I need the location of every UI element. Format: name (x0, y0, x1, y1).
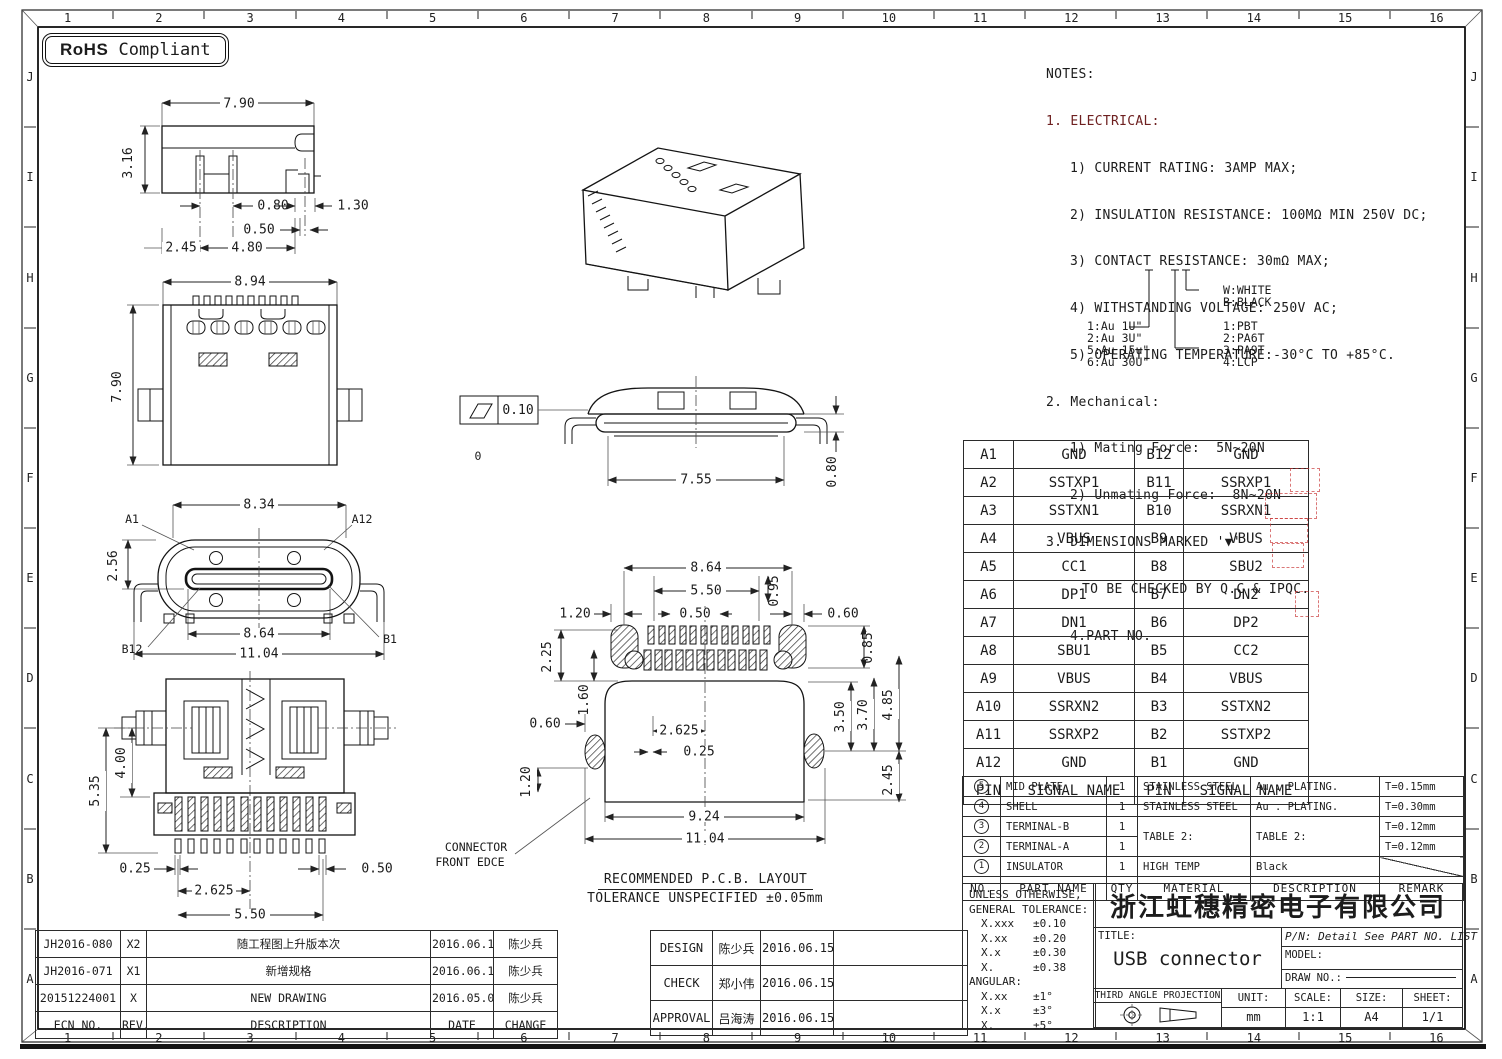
signal-a: GND (1014, 441, 1135, 469)
tol-key: X.xx (969, 932, 1033, 947)
pin-a: A11 (964, 721, 1014, 749)
approval-table: DESIGN陈少兵2016.06.15 CHECK郑小伟2016.06.15 A… (650, 930, 968, 1036)
grid-col: 11 (935, 11, 1026, 25)
tol-val: ±3° (1033, 1004, 1081, 1019)
draw-no-cell: DRAW NO.: (1281, 969, 1463, 989)
signal-a: GND (1014, 749, 1135, 777)
bottom-view-drawing: 0.25 0.50 2.625 5.50 5.35 4.00 (58, 663, 408, 931)
pin-callout-b1: B1 (383, 632, 397, 646)
dim-label: 1.20 (559, 607, 590, 622)
grid-row: I (22, 127, 38, 227)
unit-label: UNIT: (1221, 988, 1286, 1008)
approval-empty (834, 966, 968, 1001)
bom-remark: T=0.12mm (1380, 817, 1464, 837)
item-number: 3 (974, 819, 989, 834)
grid-col: 6 (478, 11, 569, 25)
grid-row: F (1466, 428, 1482, 528)
grid-col: 10 (843, 11, 934, 25)
bom-no: 3 (963, 817, 1001, 837)
notes-electrical-header: 1. ELECTRICAL: (1046, 114, 1466, 130)
bom-remark: T=0.30mm (1380, 797, 1464, 817)
sheet-label: SHEET: (1402, 988, 1463, 1008)
dim-label: 1.60 (577, 684, 592, 715)
pin-b: B12 (1135, 441, 1184, 469)
dim-label: 9.24 (688, 810, 719, 825)
front-edge-label: CONNECTOR (445, 840, 507, 854)
bom-part: SHELL (1001, 797, 1107, 817)
review-mark (1270, 518, 1308, 543)
bom-qty: 1 (1107, 817, 1138, 837)
bom-no: 5 (963, 777, 1001, 797)
dim-label: 11.04 (239, 647, 278, 662)
tolerance-item: X.±5° (969, 1019, 1081, 1034)
draw-no-label: DRAW NO.: (1285, 972, 1342, 984)
rev: X1 (121, 958, 147, 985)
pin-a: A9 (964, 665, 1014, 693)
dim-label: 0.50 (243, 223, 274, 238)
ecn-no: 20151224001 (36, 985, 121, 1012)
grid-row: J (1466, 27, 1482, 127)
bom-no: 4 (963, 797, 1001, 817)
grid-col: 4 (296, 11, 387, 25)
grid-col: 14 (1208, 1031, 1299, 1045)
revision-row: JH2016-071X1新增规格2016.06.10陈少兵 (36, 958, 558, 985)
tol-key: X.xx (969, 990, 1033, 1005)
rev: X (121, 985, 147, 1012)
projection-cell: THIRD ANGLE PROJECTION (1093, 988, 1222, 1028)
dim-label: 2.45 (165, 241, 196, 256)
revision-header-row: ECN NO.REV.DESCRIPTIONDATECHANGE (36, 1012, 558, 1039)
dim-label: 11.04 (685, 832, 724, 847)
third-angle-projection-symbol (1094, 1003, 1221, 1027)
side-view-drawing: 7.90 3.16 0.80 1.30 0.50 2.45 4.80 (112, 78, 377, 268)
approval-name: 陈少兵 (713, 931, 761, 966)
pin-a: A4 (964, 525, 1014, 553)
approval-row: APPROVAL吕海涛2016.06.15 (651, 1001, 968, 1036)
bom-remark (1380, 857, 1464, 877)
signal-b: VBUS (1184, 665, 1309, 693)
dim-label: 1.30 (337, 199, 368, 214)
approval-date: 2016.06.15 (761, 966, 834, 1001)
dim-label: 4.00 (114, 747, 129, 778)
grid-row: H (22, 227, 38, 327)
bom-row: 5MID PLATE1STAINLESS STEELAu . PLATING.T… (963, 777, 1464, 797)
pin-b: B5 (1135, 637, 1184, 665)
pin-b: B6 (1135, 609, 1184, 637)
dim-label: 0.50 (361, 862, 392, 877)
pin-row: A6DP1B7DN2 (964, 581, 1309, 609)
bom-remark: T=0.12mm (1380, 837, 1464, 857)
scale-label: SCALE: (1285, 988, 1341, 1008)
grid-row: D (22, 628, 38, 728)
top-ruler: 12345678910111213141516 (22, 11, 1482, 25)
pin-b: B3 (1135, 693, 1184, 721)
ecn-no: JH2016-071 (36, 958, 121, 985)
pin-row: A11SSRXP2B2SSTXP2 (964, 721, 1309, 749)
change-header: CHANGE (494, 1012, 558, 1039)
pin-b: B9 (1135, 525, 1184, 553)
pin-b: B1 (1135, 749, 1184, 777)
dim-label: 2.25 (540, 641, 555, 672)
signal-b: SSTXP2 (1184, 721, 1309, 749)
tol-val: ±0.30 (1033, 946, 1081, 961)
dim-label: 7.55 (680, 473, 711, 488)
grid-col: 5 (387, 11, 478, 25)
review-mark (1265, 493, 1317, 519)
isometric-view-drawing (558, 128, 823, 298)
rev-date: 2016.06.10 (431, 958, 494, 985)
dim-label: 4.80 (231, 241, 262, 256)
tolerance-item: X.x±3° (969, 1004, 1081, 1019)
dim-label: 4.85 (881, 689, 896, 720)
bom-material: STAINLESS STEEL (1138, 777, 1251, 797)
bom-description: TABLE 2: (1251, 817, 1380, 857)
dim-label: 8.94 (234, 275, 265, 290)
dim-label: 5.50 (690, 584, 721, 599)
note-line: 2) INSULATION RESISTANCE: 100MΩ MIN 250V… (1070, 208, 1466, 224)
tolerance-block: UNLESS OTHERWISE, GENERAL TOLERANCE: X.x… (962, 883, 1096, 1030)
grid-col: 2 (113, 11, 204, 25)
grid-col: 9 (752, 11, 843, 25)
bom-part: INSULATOR (1001, 857, 1107, 877)
rohs-badge: RoHS Compliant (42, 33, 229, 67)
pin-b: B4 (1135, 665, 1184, 693)
grid-col: 16 (1391, 1031, 1482, 1045)
tol-val: ±0.20 (1033, 932, 1081, 947)
grid-row: A (1466, 929, 1482, 1029)
model-cell: MODEL: (1281, 946, 1463, 970)
dim-label: 3.16 (121, 147, 136, 178)
rev-change: 陈少兵 (494, 985, 558, 1012)
dim-label: 2.56 (106, 550, 121, 581)
top-view-drawing: 8.94 7.90 (103, 263, 408, 481)
bom-part: TERMINAL-B (1001, 817, 1107, 837)
dim-label: 3.70 (856, 699, 871, 730)
pin-row: A5CC1B8SBU2 (964, 553, 1309, 581)
tol-key: X.xxx (969, 917, 1033, 932)
signal-a: DP1 (1014, 581, 1135, 609)
dim-label: 8.34 (243, 498, 274, 513)
approval-name: 吕海涛 (713, 1001, 761, 1036)
grid-row: J (22, 27, 38, 127)
pin-a: A5 (964, 553, 1014, 581)
item-number: 2 (974, 839, 989, 854)
bom-description: Au . PLATING. (1251, 777, 1380, 797)
tol-val: ±0.10 (1033, 917, 1081, 932)
grid-row: C (1466, 728, 1482, 828)
approval-date: 2016.06.15 (761, 931, 834, 966)
signal-a: VBUS (1014, 525, 1135, 553)
approval-date: 2016.06.15 (761, 1001, 834, 1036)
signal-b: DP2 (1184, 609, 1309, 637)
bom-qty: 1 (1107, 857, 1138, 877)
pin-row: A1GNDB12GND (964, 441, 1309, 469)
grid-col: 12 (1026, 1031, 1117, 1045)
grid-col: 7 (570, 11, 661, 25)
dim-label: 0.60 (529, 717, 560, 732)
description-header: DESCRIPTION (147, 1012, 431, 1039)
legend-color-2: B:BLACK (1223, 295, 1272, 309)
grid-col: 3 (205, 11, 296, 25)
signal-a: VBUS (1014, 665, 1135, 693)
approval-empty (834, 931, 968, 966)
review-mark (1295, 591, 1319, 617)
signal-a: SSTXP1 (1014, 469, 1135, 497)
profile-view-drawing: 0.10 7.55 0.80 0 (448, 368, 853, 513)
dim-label: 0.60 (827, 607, 858, 622)
grid-row: B (22, 829, 38, 929)
bom-material: HIGH TEMP (1138, 857, 1251, 877)
item-number: 5 (974, 779, 989, 794)
rev-description: 随工程图上升版本次 (147, 931, 431, 958)
grid-row: H (1466, 227, 1482, 327)
flatness-value: 0.10 (502, 403, 533, 418)
signal-a: DN1 (1014, 609, 1135, 637)
bom-part: MID PLATE (1001, 777, 1107, 797)
signal-b: SSTXN2 (1184, 693, 1309, 721)
pin-assignment-table: A1GNDB12GND A2SSTXP1B11SSRXP1 A3SSTXN1B1… (963, 440, 1309, 805)
pin-b: B10 (1135, 497, 1184, 525)
pin-b: B2 (1135, 721, 1184, 749)
tolerance-line: UNLESS OTHERWISE, (969, 888, 1095, 903)
sheet-value: 1/1 (1402, 1007, 1463, 1028)
date-header: DATE (431, 1012, 494, 1039)
tolerance-item: X.±0.38 (969, 961, 1081, 976)
tolerance-item: X.xxx±0.10 (969, 917, 1081, 932)
left-ruler: JIHGFEDCBA (22, 27, 38, 1029)
rev-header: REV. (121, 1012, 147, 1039)
bom-qty: 1 (1107, 837, 1138, 857)
dim-label: 2.625 (659, 724, 698, 739)
part-number-cell: P/N: Detail See PART NO. LIST (1281, 927, 1463, 947)
legend-material-4: 4:LCP (1223, 355, 1258, 369)
dim-label: 0.25 (119, 862, 150, 877)
pin-b: B11 (1135, 469, 1184, 497)
pin-row: A7DN1B6DP2 (964, 609, 1309, 637)
rev: X2 (121, 931, 147, 958)
tolerance-line: GENERAL TOLERANCE: (969, 903, 1095, 918)
dim-label: 0.50 (679, 607, 710, 622)
pin-row: A8SBU1B5CC2 (964, 637, 1309, 665)
size-value: A4 (1340, 1007, 1403, 1028)
signal-b: CC2 (1184, 637, 1309, 665)
grid-row: I (1466, 127, 1482, 227)
grid-col: 12 (1026, 11, 1117, 25)
rev-date: 2016.05.05 (431, 985, 494, 1012)
signal-a: SSTXN1 (1014, 497, 1135, 525)
rohs-text: Compliant (119, 40, 211, 60)
dim-label: 2.625 (194, 884, 233, 899)
revision-row: 20151224001XNEW DRAWING2016.05.05陈少兵 (36, 985, 558, 1012)
signal-a: SSRXP2 (1014, 721, 1135, 749)
pin-a: A12 (964, 749, 1014, 777)
draw-no-line (1346, 977, 1456, 978)
bom-description: Black (1251, 857, 1380, 877)
grid-row: C (22, 728, 38, 828)
pin-row: A4VBUSB9VBUS (964, 525, 1309, 553)
pin-a: A6 (964, 581, 1014, 609)
item-number: 1 (974, 859, 989, 874)
tol-val: ±0.38 (1033, 961, 1081, 976)
approval-empty (834, 1001, 968, 1036)
grid-row: D (1466, 628, 1482, 728)
review-mark (1272, 543, 1304, 568)
item-number: 4 (974, 799, 989, 814)
grid-row: B (1466, 829, 1482, 929)
revision-row: JH2016-080X2随工程图上升版本次2016.06.15陈少兵 (36, 931, 558, 958)
approval-role: DESIGN (651, 931, 713, 966)
dim-label: 0.95 (767, 575, 782, 606)
bom-row: 4SHELL1STAINLESS STEELAu . PLATING.T=0.3… (963, 797, 1464, 817)
company-name: 浙江虹穗精密电子有限公司 (1093, 883, 1463, 928)
grid-col: 13 (1117, 11, 1208, 25)
front-view-drawing: 8.34 A1 A12 2.56 8.64 B12 B1 11.04 (98, 488, 413, 666)
approval-role: APPROVAL (651, 1001, 713, 1036)
grid-row: G (22, 328, 38, 428)
tolerance-item: X.xx±0.20 (969, 932, 1081, 947)
bom-no: 2 (963, 837, 1001, 857)
bom-qty: 1 (1107, 797, 1138, 817)
rev-date: 2016.06.15 (431, 931, 494, 958)
grid-row: G (1466, 328, 1482, 428)
tolerance-item: X.x±0.30 (969, 946, 1081, 961)
projection-label: THIRD ANGLE PROJECTION (1094, 989, 1221, 1003)
pin-a: A1 (964, 441, 1014, 469)
grid-col: 8 (661, 11, 752, 25)
rev-change: 陈少兵 (494, 931, 558, 958)
grid-col: 14 (1208, 11, 1299, 25)
pin-a: A7 (964, 609, 1014, 637)
rohs-bold: RoHS (60, 40, 108, 59)
drawing-title: USB connector (1094, 948, 1281, 970)
tol-val: ±1° (1033, 990, 1081, 1005)
pin-row: A12GNDB1GND (964, 749, 1309, 777)
signal-b: GND (1184, 749, 1309, 777)
dim-label: 0.25 (683, 745, 714, 760)
bom-row: 3TERMINAL-B1TABLE 2:TABLE 2:T=0.12mm (963, 817, 1464, 837)
size-label: SIZE: (1340, 988, 1403, 1008)
pin-a: A2 (964, 469, 1014, 497)
pin-a: A8 (964, 637, 1014, 665)
rev-description: 新增规格 (147, 958, 431, 985)
dim-label: 0.80 (825, 456, 840, 487)
dim-label: 2.45 (881, 764, 896, 795)
signal-b: DN2 (1184, 581, 1309, 609)
bom-material: STAINLESS STEEL (1138, 797, 1251, 817)
grid-row: E (22, 528, 38, 628)
bom-description: Au . PLATING. (1251, 797, 1380, 817)
approval-row: CHECK郑小伟2016.06.15 (651, 966, 968, 1001)
notes-title: NOTES: (1046, 67, 1466, 83)
bom-remark: T=0.15mm (1380, 777, 1464, 797)
grid-row: F (22, 428, 38, 528)
tolerance-item: X.xx±1° (969, 990, 1081, 1005)
approval-row: DESIGN陈少兵2016.06.15 (651, 931, 968, 966)
approval-name: 郑小伟 (713, 966, 761, 1001)
dim-label: 3.50 (833, 701, 848, 732)
pin-a: A3 (964, 497, 1014, 525)
bom-part: TERMINAL-A (1001, 837, 1107, 857)
bom-row: 1INSULATOR1HIGH TEMPBlack (963, 857, 1464, 877)
tol-key: X.x (969, 946, 1033, 961)
pin-b: B8 (1135, 553, 1184, 581)
dim-label: 7.90 (223, 97, 254, 112)
dim-label: 1.20 (519, 766, 534, 797)
pin-a: A10 (964, 693, 1014, 721)
front-edge-label: FRONT EDCE (435, 855, 504, 869)
grid-row: E (1466, 528, 1482, 628)
grid-col: 16 (1391, 11, 1482, 25)
pin-row: A9VBUSB4VBUS (964, 665, 1309, 693)
part-number-legend: W:WHITE B:BLACK 1:Au 1U" 2:Au 3U" 5:Au 1… (1085, 258, 1415, 376)
signal-a: SSRXN2 (1014, 693, 1135, 721)
rev-description: NEW DRAWING (147, 985, 431, 1012)
unit-value: mm (1221, 1007, 1286, 1028)
pin-b: B7 (1135, 581, 1184, 609)
grid-col: 1 (22, 11, 113, 25)
pin-callout-a1: A1 (125, 512, 139, 526)
dim-label: 8.64 (690, 561, 721, 576)
signal-a: CC1 (1014, 553, 1135, 581)
revision-table: JH2016-080X2随工程图上升版本次2016.06.15陈少兵 JH201… (35, 930, 558, 1039)
pcb-layout-drawing: CONNECTOR FRONT EDCE 8.64 5.50 0.95 1.20… (418, 546, 958, 878)
signal-a: SBU1 (1014, 637, 1135, 665)
pin-callout-a12: A12 (352, 512, 373, 526)
tol-key: X. (969, 1019, 1033, 1034)
title-cell: TITLE: USB connector (1093, 927, 1282, 989)
bom-qty: 1 (1107, 777, 1138, 797)
grid-col: 7 (570, 1031, 661, 1045)
scale-value: 1:1 (1285, 1007, 1341, 1028)
review-mark (1290, 468, 1320, 492)
angular-label: ANGULAR: (969, 975, 1095, 990)
bom-material: TABLE 2: (1138, 817, 1251, 857)
approval-role: CHECK (651, 966, 713, 1001)
notes-mechanical-header: 2. Mechanical: (1046, 395, 1466, 411)
grid-col: 13 (1117, 1031, 1208, 1045)
drawing-sheet: 12345678910111213141516 1234567891011121… (0, 0, 1502, 1059)
right-ruler: JIHGFEDCBA (1466, 27, 1482, 1029)
ecn-no: JH2016-080 (36, 931, 121, 958)
tol-val: ±5° (1033, 1019, 1081, 1034)
pin-row: A2SSTXP1B11SSRXP1 (964, 469, 1309, 497)
rev-change: 陈少兵 (494, 958, 558, 985)
dim-label: 7.90 (110, 371, 125, 402)
signal-b: GND (1184, 441, 1309, 469)
tol-key: X. (969, 961, 1033, 976)
stray-text: 0 (475, 449, 482, 463)
note-line: 1) CURRENT RATING: 3AMP MAX; (1070, 161, 1466, 177)
tol-key: X.x (969, 1004, 1033, 1019)
legend-plating-4: 6:Au 30U" (1087, 355, 1149, 369)
pin-row: A10SSRXN2B3SSTXN2 (964, 693, 1309, 721)
pcb-layout-title: RECOMMENDED P.C.B. LAYOUT (598, 872, 813, 890)
title-label: TITLE: (1094, 928, 1281, 942)
pcb-layout-tolerance: TOLERANCE UNSPECIFIED ±0.05mm (580, 891, 830, 906)
dim-label: 5.50 (234, 908, 265, 923)
grid-col: 15 (1300, 11, 1391, 25)
dim-label: 0.85 (861, 632, 876, 663)
dim-label: 5.35 (88, 775, 103, 806)
dim-label: 8.64 (243, 627, 274, 642)
pin-row: A3SSTXN1B10SSRXN1 (964, 497, 1309, 525)
bom-no: 1 (963, 857, 1001, 877)
ecn-header: ECN NO. (36, 1012, 121, 1039)
grid-col: 15 (1300, 1031, 1391, 1045)
